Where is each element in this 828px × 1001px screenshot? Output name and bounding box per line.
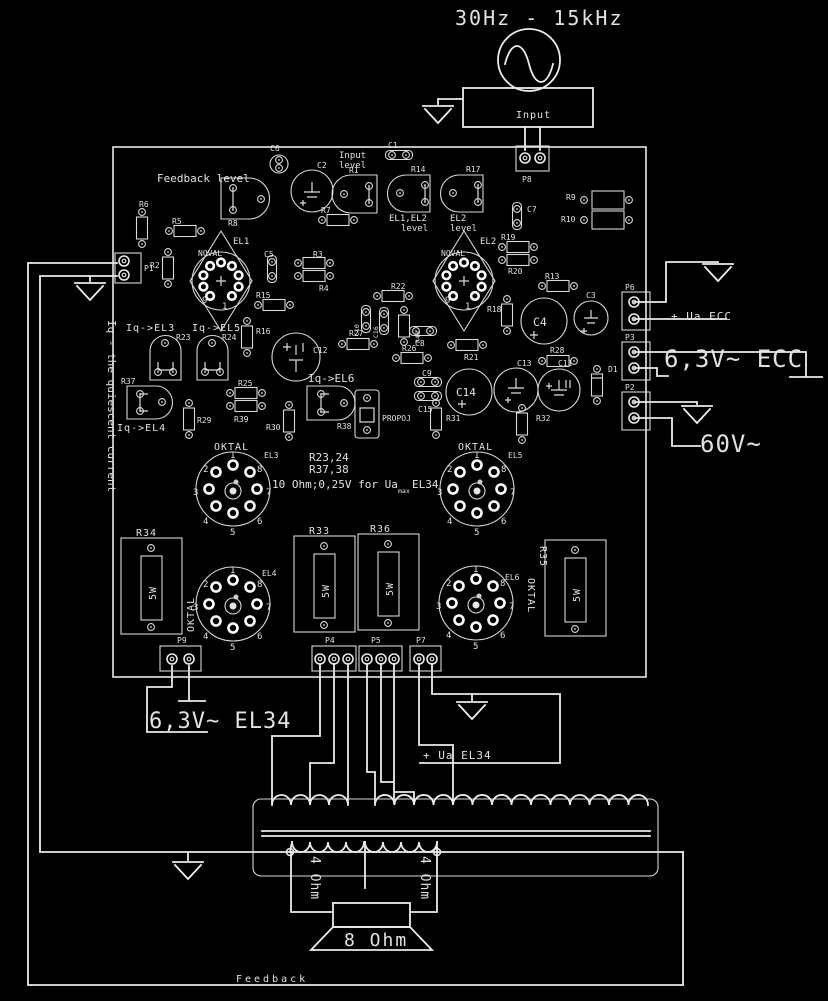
ref-C8: C8 [415, 339, 425, 348]
ref-P3: P3 [625, 333, 635, 342]
ref-C16: C16 [372, 326, 380, 338]
ref-R9: R9 [566, 193, 576, 202]
tap-left-label: 4 Ohm [307, 856, 322, 900]
cap-C3 [574, 301, 608, 335]
ref-R28: R28 [550, 346, 565, 355]
ref-R22: R22 [391, 282, 406, 291]
ref-R10: R10 [561, 215, 576, 224]
note-line3: 10 Ohm;0,25V for Ua [272, 478, 398, 491]
ref-R7: R7 [321, 206, 331, 215]
pin-number: 7 [266, 603, 271, 613]
pin-number: 2 [446, 579, 451, 589]
pin-number: 3 [193, 603, 198, 613]
pin-number: 5 [473, 642, 478, 652]
pin-number: 1 [474, 451, 479, 461]
pin-number: 7 [510, 488, 515, 498]
ref-EL3: EL3 [264, 451, 279, 460]
watt-R36: 5W [385, 582, 396, 596]
el1el2-level-label-2: level [401, 224, 428, 234]
feedback-level-label: Feedback level [157, 172, 250, 185]
pin-number: 2 [203, 580, 208, 590]
watt-R35: 5W [572, 588, 583, 602]
ref-R21: R21 [464, 353, 479, 362]
heater-el34-label: 6,3V~ EL34 [149, 709, 291, 734]
pin-number: 8 [257, 465, 262, 475]
noval-label-el2: NOVAL [441, 249, 465, 258]
ref-C10: C10 [353, 324, 361, 336]
pin-number: 4 [203, 632, 208, 642]
watt-R34: 5W [148, 586, 159, 600]
pin-number: 3 [437, 488, 442, 498]
labels: 30Hz - 15kHz Input P8 + Ua ECC 6,3V~ ECC… [105, 6, 803, 985]
ua-ecc-label: + Ua ECC [671, 310, 732, 323]
ref-C4: C4 [533, 315, 547, 329]
trimmer-R38 [307, 386, 355, 420]
ref-C12: C12 [313, 346, 328, 355]
ref-R17: R17 [466, 165, 481, 174]
ref-C1: C1 [388, 141, 398, 150]
ref-R6: R6 [139, 200, 149, 209]
connector-P1 [115, 253, 141, 283]
cap-C6 [270, 155, 288, 173]
ref-C3: C3 [586, 291, 596, 300]
ref-R35: R35 [537, 546, 548, 567]
pin-number: 5 [230, 528, 235, 538]
ref-R39: R39 [234, 415, 249, 424]
connector-P9 [160, 646, 201, 671]
trimmer-R24 [197, 336, 228, 381]
ref-R4: R4 [319, 284, 329, 293]
ref-C14: C14 [456, 386, 476, 399]
socket-EL3-oktal [196, 452, 270, 526]
pot-R17-el2-level [441, 175, 483, 212]
pin-number: 5 [474, 528, 479, 538]
input-level-label-1: Input [339, 151, 366, 161]
pin-number: 1 [473, 565, 478, 575]
ref-EL5: EL5 [508, 451, 523, 460]
noval-pin9-el2: 9 [445, 296, 450, 306]
ref-R23: R23 [176, 333, 191, 342]
schematic-page: 30Hz - 15kHz Input P8 + Ua ECC 6,3V~ ECC… [0, 0, 828, 1001]
heater-ecc-label: 6,3V~ ECC [664, 345, 803, 373]
pin-number: 6 [257, 632, 262, 642]
pin-number: 7 [509, 602, 514, 612]
bias-60v-label: 60V~ [700, 430, 762, 458]
ref-R14: R14 [411, 165, 426, 174]
ref-C9: C9 [422, 369, 432, 378]
ref-R34: R34 [136, 528, 157, 539]
res-R10 [581, 211, 633, 229]
ref-R8: R8 [228, 219, 238, 228]
iq-el4-label: Iq->EL4 [117, 423, 166, 434]
pin-number: 7 [266, 488, 271, 498]
potentiometers [221, 175, 483, 219]
pot-R14-el1el2-level [388, 175, 431, 212]
secondary-winding-right [365, 842, 437, 852]
pin-number: 5 [230, 643, 235, 653]
ref-P8: P8 [522, 175, 532, 184]
tube-amp-schematic: 30Hz - 15kHz Input P8 + Ua ECC 6,3V~ ECC… [0, 0, 828, 1001]
ref-R5: R5 [172, 217, 182, 226]
ref-C7: C7 [527, 205, 537, 214]
ref-R29: R29 [197, 416, 212, 425]
pin-number: 4 [203, 517, 208, 527]
input-source-label: Input [516, 110, 551, 121]
note-line3-sub: max [398, 487, 410, 495]
noval-label-el1: NOVAL [198, 249, 222, 258]
sine-icon [505, 46, 553, 82]
noval-pin1-el2: 1 [465, 302, 470, 312]
ref-R37: R37 [121, 377, 136, 386]
res-R9 [581, 191, 633, 209]
ref-R13: R13 [545, 272, 560, 281]
ref-P9: P9 [177, 636, 187, 645]
ref-R24: R24 [222, 333, 237, 342]
el1el2-level-label-1: EL1,EL2 [389, 214, 427, 224]
pin-number: 1 [230, 451, 235, 461]
ref-EL4: EL4 [262, 569, 277, 578]
pin-number: 6 [257, 517, 262, 527]
trimmer-R37 [127, 386, 173, 419]
ref-R26: R26 [402, 344, 417, 353]
ref-R38: R38 [337, 422, 352, 431]
pin-number: 6 [500, 631, 505, 641]
pin-number: 8 [500, 579, 505, 589]
pin-number: 4 [446, 631, 451, 641]
ref-R1: R1 [349, 166, 359, 175]
ref-C15: C15 [418, 405, 433, 414]
note-line2: R37,38 [309, 463, 349, 476]
trimmer-R23 [150, 336, 181, 381]
ref-C13: C13 [517, 359, 532, 368]
pin-number: 3 [193, 488, 198, 498]
ref-R19: R19 [501, 233, 516, 242]
watt-R33: 5W [321, 584, 332, 598]
oktal-label-el6: OKTAL [525, 578, 536, 613]
diode-D1 [592, 366, 603, 405]
pin-number: 3 [436, 602, 441, 612]
ref-P7: P7 [416, 636, 426, 645]
ref-P6: P6 [625, 283, 635, 292]
ua-el34-label: + Ua EL34 [423, 749, 492, 762]
note-line3-end: EL34 [412, 478, 439, 491]
ref-C5: C5 [264, 250, 274, 259]
connector-P7 [410, 646, 441, 671]
connector-P8 [516, 146, 549, 171]
ref-R2: R2 [150, 261, 160, 270]
ref-P5: P5 [371, 636, 381, 645]
noval-pin1-el1: 1 [222, 302, 227, 312]
ref-P2: P2 [625, 383, 635, 392]
cap-C11 [538, 369, 580, 411]
ref-P4: P4 [325, 636, 335, 645]
ref-C11: C11 [558, 359, 573, 368]
transformer-core [262, 831, 650, 836]
pin-number: 4 [447, 517, 452, 527]
speaker-impedance-label: 8 Ohm [344, 930, 408, 951]
cap-C13 [494, 368, 538, 412]
socket-EL6-oktal [439, 566, 513, 640]
ref-EL6: EL6 [505, 573, 520, 582]
ref-R18: R18 [487, 305, 502, 314]
ref-R16: R16 [256, 327, 271, 336]
ref-R31: R31 [446, 414, 461, 423]
ref-R30: R30 [266, 423, 281, 432]
pin-number: 1 [230, 566, 235, 576]
el2-level-label-1: EL2 [450, 214, 466, 224]
pin-number: 2 [447, 465, 452, 475]
el2-level-label-2: level [450, 224, 477, 234]
ref-R33: R33 [309, 526, 330, 537]
ref-EL2: EL2 [480, 237, 496, 247]
ref-R15: R15 [256, 291, 271, 300]
frequency-range-label: 30Hz - 15kHz [455, 6, 624, 30]
pin-number: 8 [257, 580, 262, 590]
side-note-iq: Iq - the quiescent current [105, 320, 118, 492]
socket-EL5-oktal [440, 452, 514, 526]
jumper-PROPOJ [355, 390, 379, 438]
pin-number: 8 [501, 465, 506, 475]
small-components [137, 151, 633, 444]
feedback-loop-label: Feedback [236, 974, 308, 985]
iq-el6-label: Iq->EL6 [308, 372, 354, 385]
noval-pin9-el1: 9 [202, 296, 207, 306]
ref-C6: C6 [270, 144, 280, 153]
ref-R3: R3 [313, 250, 323, 259]
ref-C2: C2 [317, 161, 327, 170]
ref-R20: R20 [508, 267, 523, 276]
tap-right-label: 4 Ohm [417, 856, 432, 900]
ref-EL1: EL1 [233, 237, 249, 247]
pin-number: 6 [501, 517, 506, 527]
tube-sockets [190, 231, 514, 641]
pot-R1-input-level [332, 175, 377, 213]
primary-winding-right [375, 795, 648, 805]
pin-number: 2 [203, 465, 208, 475]
propoj-label: PROPOJ [382, 414, 411, 423]
ref-R32: R32 [536, 414, 551, 423]
ref-R25: R25 [238, 379, 253, 388]
secondary-winding-left [292, 842, 364, 852]
socket-EL4-oktal [196, 567, 270, 641]
ref-R36: R36 [370, 524, 391, 535]
iq-el3-label: Iq->EL3 [126, 323, 175, 334]
ref-D1: D1 [608, 365, 618, 374]
generator-circle [498, 29, 560, 91]
